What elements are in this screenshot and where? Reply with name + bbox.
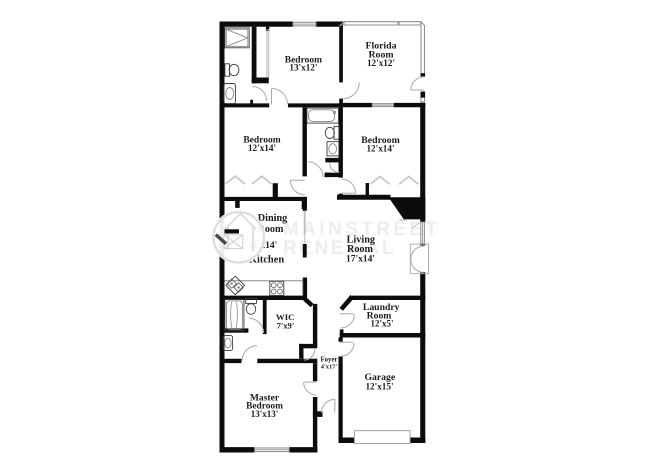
svg-text:Room: Room [347,244,374,255]
svg-text:12'x14': 12'x14' [248,143,276,153]
svg-text:12'x14': 12'x14' [366,144,394,154]
svg-text:Dining: Dining [258,213,287,224]
svg-text:12'x12': 12'x12' [367,58,395,68]
svg-text:7'x9': 7'x9' [277,320,295,330]
svg-text:17'x14': 17'x14' [346,254,375,264]
svg-text:12'x15': 12'x15' [365,381,393,391]
svg-text:13'x12': 13'x12' [289,63,317,73]
svg-text:4'x17': 4'x17' [321,364,338,371]
svg-text:Foyer: Foyer [321,356,338,363]
svg-text:RENEWAL: RENEWAL [283,238,396,259]
svg-text:13'x13': 13'x13' [251,409,279,419]
svg-text:12'x5': 12'x5' [370,319,393,329]
